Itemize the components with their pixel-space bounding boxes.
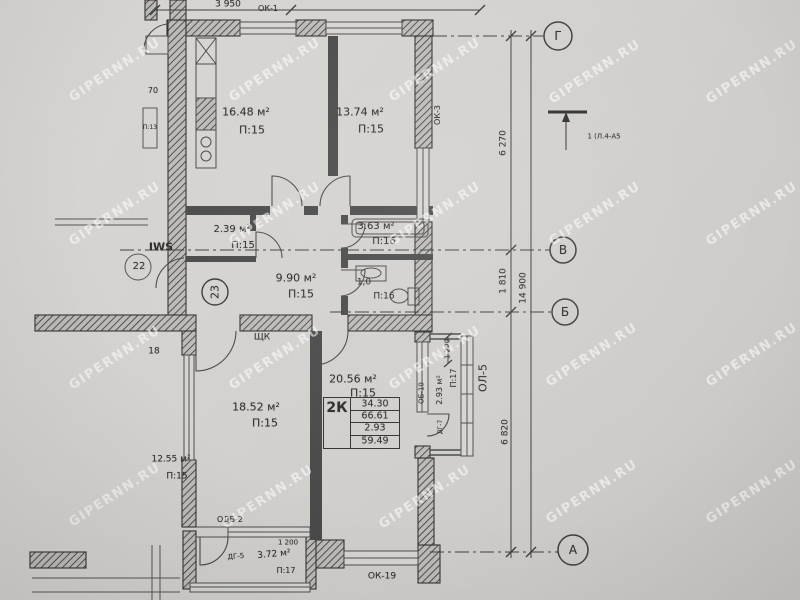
window-odb2 xyxy=(196,527,310,537)
neighbor-iws-label: IWS xyxy=(149,242,173,253)
door-bedroom2 xyxy=(196,331,236,371)
dim-6270: 6 270 xyxy=(500,130,509,156)
neighbor-18-label: 18 xyxy=(148,348,159,357)
odb2-label: ОДБ-2 xyxy=(217,516,243,524)
neighbor-room-area-label: 12.55 м² xyxy=(151,456,190,465)
door-dg7-label: ДГ-7 xyxy=(438,420,444,434)
stamp-row-2: 66.61 xyxy=(361,411,388,421)
bathroom-area-label: 3.63 м² xyxy=(358,222,395,232)
section-mark xyxy=(548,112,587,150)
window-bedroom2 xyxy=(184,355,194,460)
door-dg5-label: ДГ-5 xyxy=(227,553,244,561)
door-dg5-balcony xyxy=(200,537,228,565)
window-ok1-label: ОК-1 xyxy=(258,5,278,13)
window-balcony xyxy=(190,583,310,592)
neighbor-70-label: 70 xyxy=(148,87,158,95)
hallway-floor-label: П:15 xyxy=(288,289,314,300)
bedroom1-area-label: 13.74 м² xyxy=(336,107,384,118)
apartment-stamp: 2К 34.30 66.61 2.93 59.49 xyxy=(323,397,400,449)
floor-plan-drawing xyxy=(0,0,800,600)
dim-14900: 14 900 xyxy=(520,272,529,304)
bedroom2-floor-label: П:15 xyxy=(252,418,278,429)
neighbor-unit-number: 22 xyxy=(133,262,146,272)
door-neighbor-top xyxy=(144,24,168,50)
stamp-row-1: 34.30 xyxy=(361,399,388,409)
window-ob10-label: ОБ-10 xyxy=(419,382,426,404)
wc-area-label: 1,0 xyxy=(357,279,371,288)
closet-area-label: 2.39 м² xyxy=(214,225,251,235)
axis-letter-g: Г xyxy=(554,30,561,42)
stamp-type: 2К xyxy=(326,401,347,415)
bedroom1-floor-label: П:15 xyxy=(358,124,384,135)
axis-letter-a: А xyxy=(569,544,577,556)
floor-plan-photo: 16.48 м² П:15 13.74 м² П:15 2.39 м² П:15… xyxy=(0,0,800,600)
dim-1810: 1 810 xyxy=(500,268,509,294)
hallway-area-label: 9.90 м² xyxy=(276,273,317,284)
door-closet xyxy=(256,232,282,258)
window-ok3-label: ОК-3 xyxy=(434,105,442,125)
unit-number: 23 xyxy=(210,285,221,299)
kitchen-floor-label: П:15 xyxy=(239,125,265,136)
bedroom2-area-label: 18.52 м² xyxy=(232,402,280,413)
bathroom-floor-label: П:16 xyxy=(372,237,396,247)
fixtures xyxy=(196,38,428,305)
top-dimension-line xyxy=(150,5,485,15)
window-ok19-label: ОК-19 xyxy=(368,573,396,582)
window-ok19 xyxy=(344,551,418,565)
door-kitchen xyxy=(272,176,302,206)
loggia-floor-label: П:17 xyxy=(450,369,458,388)
neighbor-room-floor-label: П:15 xyxy=(166,473,187,482)
balcony-width-label: 1 200 xyxy=(278,540,298,547)
balcony-floor-label: П:17 xyxy=(277,567,296,575)
shk-label: ЩК xyxy=(254,334,270,343)
window-ol5-label: ОЛ-5 xyxy=(478,364,489,392)
loggia-width-label: 1 200 xyxy=(445,339,452,359)
living-area-label: 20.56 м² xyxy=(329,374,377,385)
section-mark-label: 1 (Л.4-А5 xyxy=(587,134,620,141)
door-bedroom1 xyxy=(320,176,350,206)
window-ok3 xyxy=(417,148,429,222)
dim-6820: 6 820 xyxy=(502,419,511,445)
loggia-area-label: 2.93 м² xyxy=(436,375,444,405)
top-dimension: 3 950 xyxy=(215,1,241,10)
stamp-row-3: 2.93 xyxy=(364,423,385,433)
axis-letter-b: Б xyxy=(561,306,569,318)
closet-floor-label: П:15 xyxy=(231,241,255,251)
kitchen-area-label: 16.48 м² xyxy=(222,107,270,118)
stamp-row-4: 59.49 xyxy=(361,436,388,446)
window-ol5 xyxy=(461,336,473,456)
kitchen-units xyxy=(196,38,216,168)
neighbor-p13-label: П:13 xyxy=(143,125,157,131)
axis-letter-v: В xyxy=(559,244,567,256)
wc-floor-label: П:16 xyxy=(373,293,394,302)
